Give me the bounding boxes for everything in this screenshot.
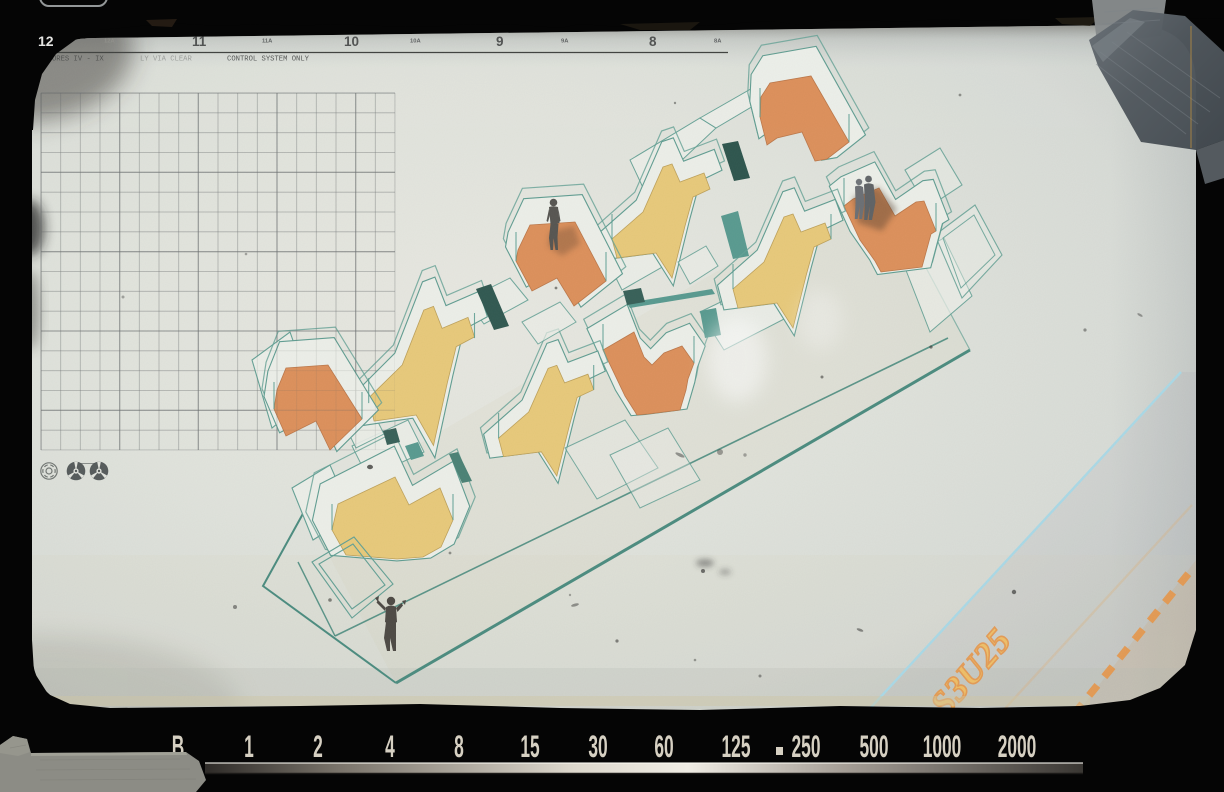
- svg-text:2000: 2000: [998, 730, 1037, 765]
- svg-text:2: 2: [313, 730, 323, 765]
- svg-text:30: 30: [588, 730, 607, 765]
- svg-text:60: 60: [654, 730, 673, 765]
- svg-text:12: 12: [38, 33, 54, 49]
- svg-text:500: 500: [860, 730, 889, 765]
- svg-text:1: 1: [244, 730, 254, 765]
- svg-text:4: 4: [385, 730, 395, 765]
- svg-text:125: 125: [722, 730, 751, 765]
- svg-text:1000: 1000: [923, 730, 962, 765]
- svg-text:15: 15: [520, 730, 539, 765]
- svg-text:250: 250: [792, 730, 821, 765]
- svg-text:8: 8: [454, 730, 464, 765]
